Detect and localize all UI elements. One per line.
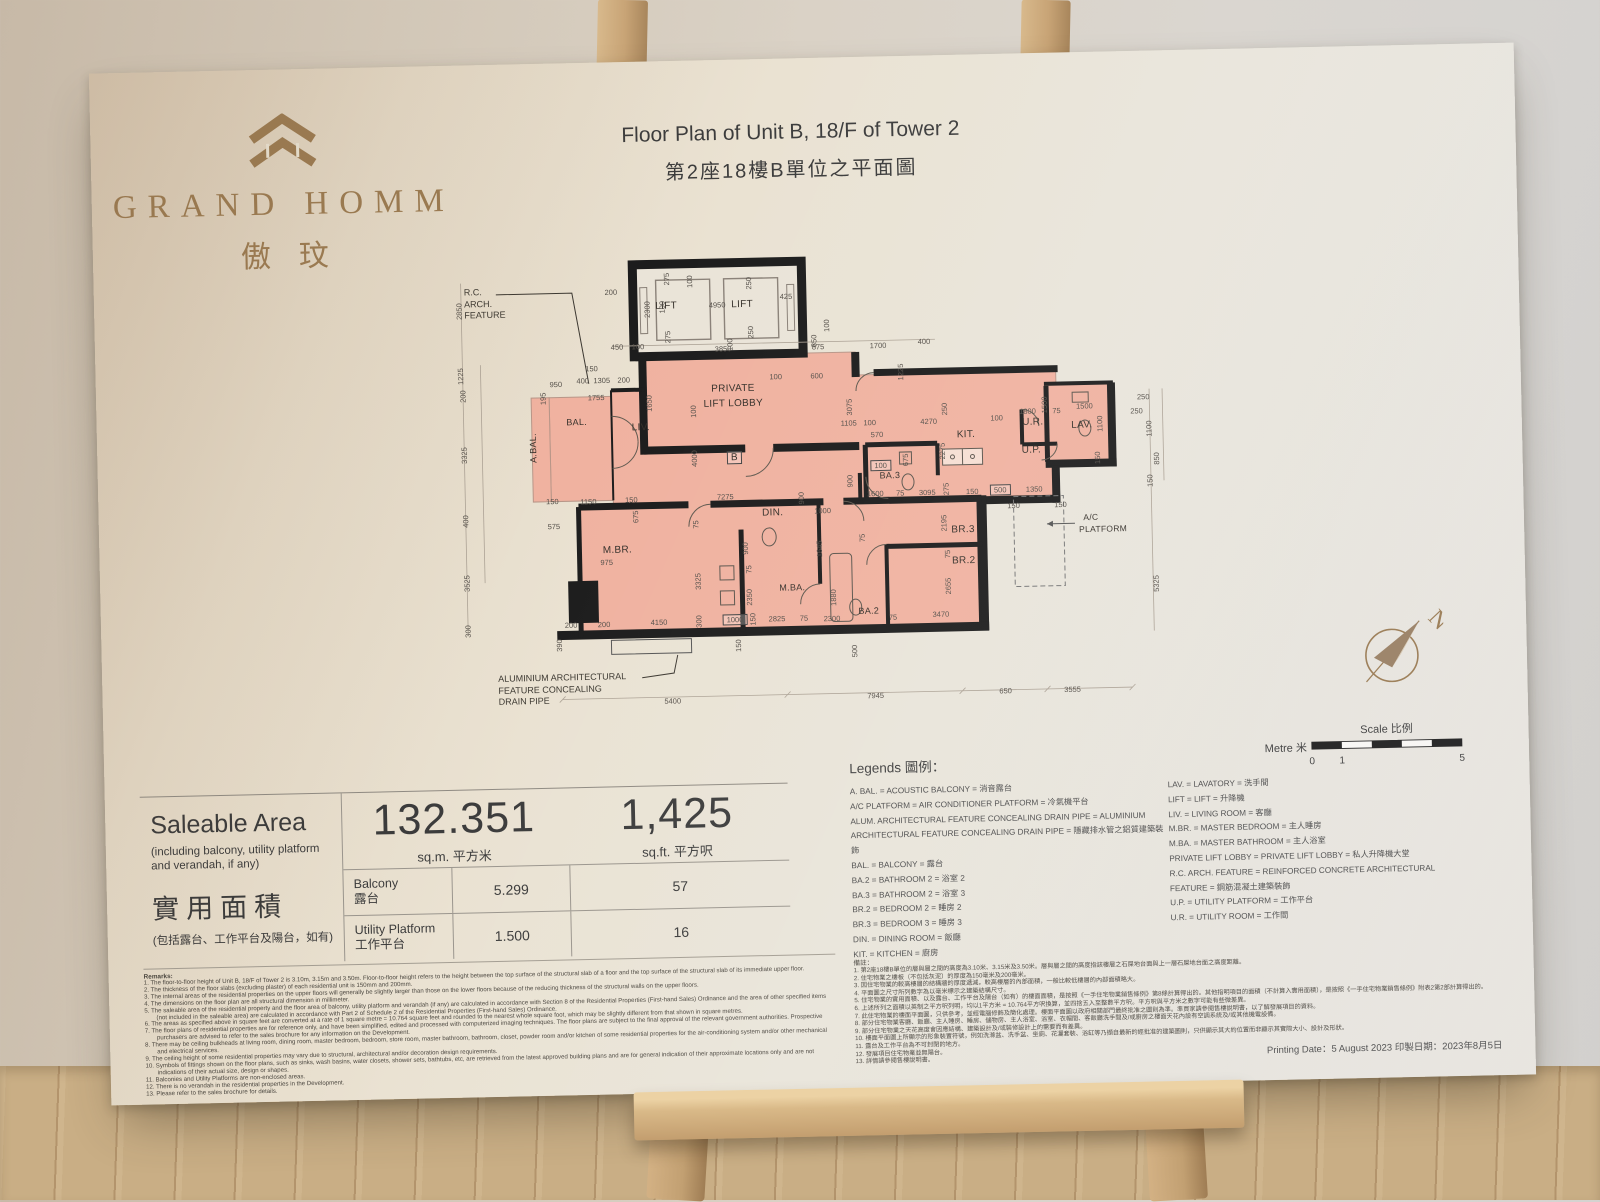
dimension-label: 1600 [867, 489, 884, 498]
dimension-label: 2850 [455, 303, 464, 320]
dimension-label: 200 [604, 288, 617, 297]
brand-logo-chinese: 傲玟 [104, 228, 465, 280]
room-label: LAV. [1071, 419, 1092, 430]
room-label: A/C [1083, 512, 1098, 522]
saleable-area-heading: Saleable Area [150, 807, 336, 840]
dimension-label: 100 [685, 275, 694, 288]
area-sqm-unit: sq.m. 平方米 [343, 843, 566, 867]
dimension-label: 1645 [815, 540, 824, 557]
dimension-label: 1150 [580, 497, 596, 506]
area-sqm: 132.351 sq.m. 平方米 [342, 788, 567, 869]
dimension-label: 3850 [715, 344, 732, 353]
dimension-label: 400 [918, 337, 931, 346]
room-label: PLATFORM [1079, 523, 1127, 534]
room-label: BR.3 [951, 524, 975, 536]
dimension-label: 675 [631, 510, 640, 523]
dimension-label: 150 [546, 497, 559, 506]
dimension-label: 1000 [723, 614, 748, 626]
room-label: BA.3 [879, 470, 900, 480]
dimension-label: 1105 [841, 418, 857, 427]
page-title: Floor Plan of Unit B, 18/F of Tower 2 第2… [530, 115, 1051, 188]
saleable-area-panel: Saleable Area (including balcony, utilit… [140, 783, 792, 966]
room-label: U.P. [1022, 444, 1042, 455]
dimension-label: 1700 [870, 341, 887, 350]
scale-title-text: Scale 比例 [1360, 721, 1413, 736]
dimension-label: 3525 [462, 575, 471, 592]
dimension-label: 500 [850, 645, 859, 658]
room-label: M.BR. [603, 544, 633, 556]
legends: Legends 圖例： A. BAL. = ACOUSTIC BALCONY =… [849, 744, 1478, 963]
dimension-label: 150 [1007, 501, 1020, 510]
dimension-label: 100 [689, 405, 698, 418]
dimension-label: 250 [746, 326, 755, 339]
alum-feature-label: ALUMINIUM ARCHITECTURAL FEATURE CONCEALI… [498, 671, 627, 708]
dimension-label: 300 [464, 625, 473, 638]
area-sqft: 1,425 sq.ft. 平方呎 [565, 784, 790, 865]
dimension-label: 5325 [1152, 575, 1161, 592]
dimension-label: 3075 [845, 399, 854, 416]
scale-title: Scale 比例 [1360, 721, 1413, 736]
dimension-label: 950 [549, 380, 562, 389]
dimension-label: 2825 [769, 614, 786, 623]
dimension-label: 3325 [460, 447, 469, 464]
dimension-label: 500 [990, 484, 1011, 495]
dimension-label: 200 [458, 390, 467, 403]
dimension-label: 200 [565, 621, 578, 630]
dimension-label: 150 [1054, 500, 1067, 509]
dimension-label: 4950 [709, 300, 726, 309]
dimension-label: 900 [797, 492, 806, 505]
dimension-label: 1755 [588, 393, 605, 402]
dimension-label: 75 [1052, 406, 1061, 415]
dimension-label: 150 [1093, 451, 1102, 464]
brand-logo: GRAND HOMM 傲玟 [102, 110, 465, 280]
dimension-label: 650 [999, 686, 1012, 695]
dimension-label: 275 [942, 483, 951, 496]
dimension-label: 75 [800, 614, 809, 623]
brand-logo-name: GRAND HOMM [103, 183, 464, 228]
dimension-label: 2350 [745, 589, 754, 606]
dimension-label: 1500 [1076, 401, 1093, 410]
area-sqm-value: 132.351 [342, 792, 566, 846]
dimension-label: 75 [943, 550, 952, 559]
area-table-row: Utility Platform工作平台 1.500 16 [344, 906, 791, 962]
north-arrow-icon: N [1343, 592, 1445, 699]
page-title-zh: 第2座18樓B單位之平面圖 [531, 148, 1052, 188]
dimension-label: 200 [617, 375, 630, 384]
page-title-en: Floor Plan of Unit B, 18/F of Tower 2 [530, 115, 1050, 150]
dimension-label: 2195 [939, 515, 948, 532]
dimension-label: 450 [611, 343, 624, 352]
dimension-label: 2275 [938, 443, 947, 460]
room-label: M.BA. [779, 582, 805, 593]
floor-plan-board: GRAND HOMM 傲玟 Floor Plan of Unit B, 18/F… [89, 43, 1536, 1106]
dimension-label: 150 [966, 487, 979, 496]
legends-title: Legends 圖例： [849, 744, 1474, 778]
dimension-label: 975 [600, 558, 613, 567]
dimension-label: 250 [1130, 406, 1143, 415]
dimension-label: 5400 [664, 696, 681, 705]
dimension-label: 675 [901, 454, 910, 467]
dimension-label: 850 [1152, 452, 1161, 465]
dimension-label: 150 [748, 613, 757, 626]
area-sqft-unit: sq.ft. 平方呎 [566, 839, 789, 863]
area-sqft-value: 1,425 [565, 788, 789, 842]
dimension-label: 250 [940, 403, 949, 416]
dimension-label: 195 [538, 392, 547, 405]
dimension-label: 575 [548, 522, 561, 531]
dimension-label: 1500 [1040, 396, 1049, 413]
dimension-label: 100 [990, 413, 1003, 422]
dimension-label: 75 [691, 520, 700, 529]
dimension-label: 250 [1137, 392, 1150, 401]
room-label: DIN. [762, 507, 783, 518]
room-label: PRIVATE [711, 383, 755, 395]
room-label: A.BAL. [528, 433, 539, 463]
dimension-label: 390 [555, 639, 564, 652]
room-label: LIV. [632, 422, 650, 433]
dimension-label: 100 [658, 301, 667, 314]
dimension-label: 2300 [824, 614, 841, 623]
dimension-label: 75 [744, 565, 753, 574]
dimension-label: 1800 [1019, 407, 1036, 416]
room-label: KIT. [957, 429, 976, 440]
dimension-label: 7275 [717, 492, 734, 501]
north-label: N [1423, 605, 1445, 635]
dimension-label: 7945 [867, 691, 884, 700]
dimension-label: 3470 [932, 610, 949, 619]
dimension-label: 150 [585, 364, 598, 373]
dimension-label: 150 [1145, 474, 1154, 487]
plan-walls-svg [433, 238, 1203, 724]
room-label: LIFT LOBBY [703, 398, 763, 410]
dimension-label: 425 [780, 292, 793, 301]
dimension-label: 100 [822, 319, 831, 332]
dimension-label: 400 [461, 515, 470, 528]
dimension-label: 100 [863, 418, 876, 427]
room-label: BAL. [566, 417, 587, 427]
dimension-label: 850 [809, 335, 818, 348]
dimension-label: 3325 [693, 573, 702, 590]
saleable-area-subtext-zh: (包括露台、工作平台及陽台，如有) [153, 928, 338, 948]
dimension-label: 300 [694, 615, 703, 628]
dimension-label: 1225 [896, 364, 905, 381]
dimension-label: 900 [845, 475, 854, 488]
dimension-label: 150 [734, 639, 743, 652]
dimension-label: 1100 [1144, 420, 1153, 436]
dimension-label: 1305 [593, 376, 610, 385]
saleable-area-subtext: (including balcony, utility platform and… [151, 841, 337, 873]
dimension-label: 1650 [645, 395, 654, 412]
dimension-label: 100 [769, 372, 782, 381]
dimension-label: 200 [598, 620, 611, 629]
room-label: U.R. [1022, 416, 1043, 427]
room-label: LIFT [731, 299, 753, 310]
dimension-label: 3095 [919, 488, 936, 497]
room-label: BR.2 [952, 555, 976, 567]
saleable-area-heading-zh: 實用面積 [152, 883, 338, 926]
dimension-label: 600 [810, 371, 823, 380]
dimension-label: 275 [662, 273, 671, 286]
floor-plan: LIFTLIFTPRIVATELIFT LOBBYBAL.A.BAL.LIV.B… [433, 238, 1203, 724]
dimension-label: 250 [744, 277, 753, 290]
dimension-label: 1100 [1095, 416, 1104, 432]
dimension-label: 3555 [1064, 685, 1081, 694]
dimension-label: 1000 [814, 506, 831, 515]
rc-arch-feature-label: R.C. ARCH. FEATURE [464, 287, 506, 322]
dimension-label: 75 [858, 534, 867, 543]
dimension-label: 75 [896, 488, 905, 497]
dimension-label: 275 [663, 331, 672, 344]
dimension-label: 100 [870, 460, 891, 471]
room-label: B [727, 451, 742, 464]
dimension-label: 150 [625, 495, 638, 504]
brand-logo-icon [239, 113, 326, 173]
dimension-label: 4000 [690, 450, 699, 467]
dimension-label: 100 [632, 342, 645, 351]
dimension-label: 4270 [920, 417, 937, 426]
room-label: BA.2 [858, 606, 879, 616]
dimension-label: 4150 [651, 618, 668, 627]
dimension-label: 1880 [829, 589, 838, 606]
dimension-label: 1350 [1026, 484, 1043, 493]
dimension-label: 1225 [456, 368, 465, 385]
dimension-label: 570 [871, 430, 884, 439]
dimension-label: 2655 [944, 578, 953, 595]
dimension-label: 900 [741, 542, 750, 555]
dimension-label: 400 [576, 376, 589, 385]
remarks-en: Remarks: 1. The floor-to-floor height of… [143, 954, 838, 1098]
dimension-label: 2300 [643, 301, 652, 318]
dimension-label: 75 [889, 613, 898, 622]
